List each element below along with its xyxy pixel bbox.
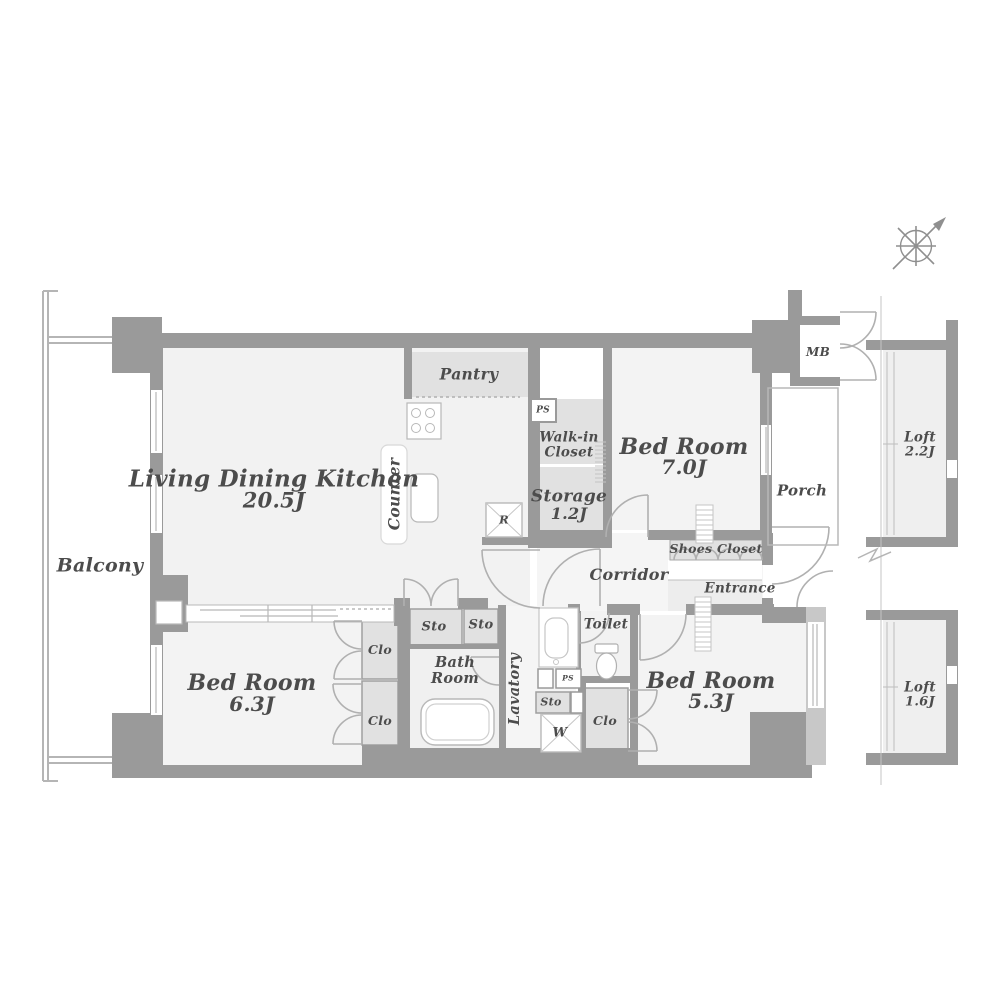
stove-icon	[407, 403, 441, 439]
loft-upper-name-label: Loft	[904, 431, 936, 445]
bedroom63-area-label: 6.3J	[229, 694, 274, 714]
bedroom63-name-label: Bed Room	[188, 672, 317, 694]
sto-left-label: Sto	[422, 621, 447, 634]
toilet-label: Toilet	[584, 618, 628, 632]
storage-area-label: 1.2J	[551, 506, 588, 522]
clo-upper-label: Clo	[368, 644, 392, 657]
ladder-icon	[696, 505, 713, 543]
meter-box-label: MB	[806, 346, 830, 358]
refrigerator-label: R	[499, 514, 509, 526]
bedroom53-area-label: 5.3J	[688, 691, 733, 711]
clo-53-label: Clo	[593, 715, 617, 728]
bath-room-label-1: Bath	[435, 656, 475, 671]
walk-in-closet-label-2: Closet	[544, 446, 593, 460]
break-symbol	[858, 549, 891, 561]
balcony-rail	[43, 291, 112, 781]
walk-in-closet-label-1: Walk-in	[539, 431, 598, 445]
loft-lower-area-label: 1.6J	[905, 696, 935, 709]
pipe-space-upper-label: PS	[536, 407, 550, 416]
floor-plan-canvas	[0, 0, 1000, 1000]
lavatory-label: Lavatory	[508, 653, 523, 725]
bathtub-icon	[421, 699, 494, 745]
loft-upper-area-label: 2.2J	[905, 446, 935, 459]
balcony-label: Balcony	[57, 557, 144, 576]
compass-north-icon	[893, 217, 946, 269]
porch-label: Porch	[777, 484, 827, 499]
washbasin-icon	[539, 608, 578, 667]
pipe-space-lower-label: PS	[562, 674, 574, 682]
ladder-icon	[695, 597, 711, 651]
pantry-label: Pantry	[440, 366, 499, 382]
counter-label: Counter	[386, 458, 402, 531]
toilet-icon	[595, 644, 618, 679]
entrance-label: Entrance	[704, 582, 775, 596]
corridor-label: Corridor	[589, 567, 668, 583]
washer-label: W	[553, 727, 568, 740]
loft-lower-name-label: Loft	[904, 681, 936, 695]
bath-room-label-2: Room	[431, 672, 479, 687]
ldk-area-label: 20.5J	[243, 490, 306, 511]
porch-outline	[768, 388, 838, 545]
bedroom7-area-label: 7.0J	[661, 457, 706, 477]
shoes-closet-label: Shoes Closet	[669, 543, 762, 556]
floor-plan: Balcony Living Dining Kitchen 20.5J Coun…	[0, 0, 1000, 1000]
storage-name-label: Storage	[531, 489, 607, 506]
sto-right-label: Sto	[469, 619, 494, 632]
clo-lower-label: Clo	[368, 715, 392, 728]
sto-small-label: Sto	[540, 697, 561, 708]
